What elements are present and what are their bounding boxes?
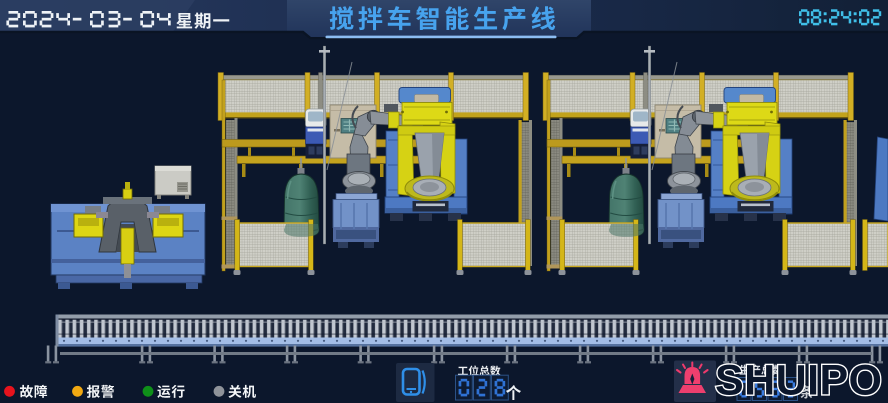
svg-text:SHUIPO: SHUIPO	[715, 357, 882, 403]
